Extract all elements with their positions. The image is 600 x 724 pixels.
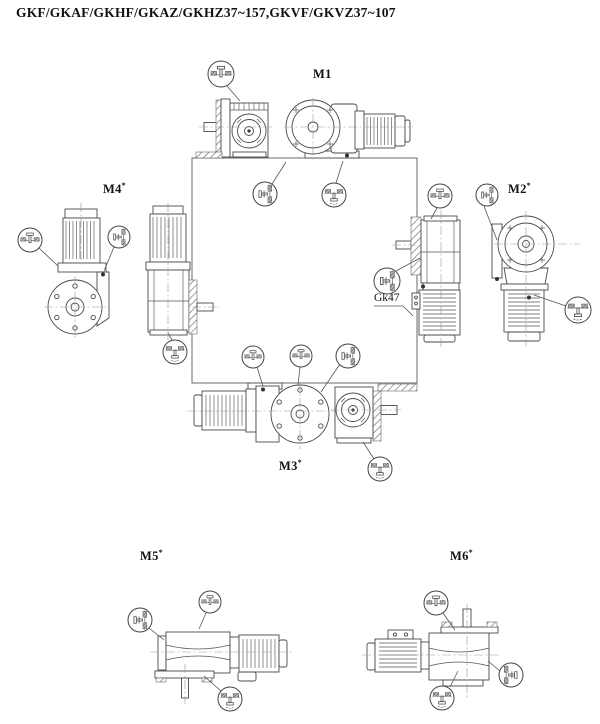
vent-plug-icon [290, 345, 312, 367]
drain-plug-icon [368, 457, 392, 481]
label-m4: M4* [103, 181, 126, 197]
m3-left-gearmotor-drawing [188, 382, 336, 449]
m6-gearmotor-drawing [362, 604, 500, 700]
side-oil-plug-icon [253, 182, 277, 206]
label-m5: M5* [140, 548, 163, 564]
drain-plug-icon [322, 183, 346, 207]
vent-plug-icon [208, 61, 234, 87]
diagram-canvas [0, 0, 600, 724]
vent-plug-icon [428, 184, 452, 208]
gk47-leader-line [374, 306, 413, 316]
m4-right-gearmotor-drawing [146, 203, 220, 340]
side-oil-plug-icon [476, 184, 498, 206]
mounting-positions-page: { "title": "GKF/GKAF/GKHF/GKAZ/GKHZ37~15… [0, 0, 600, 724]
drain-plug-icon [163, 340, 187, 364]
drain-plug-icon [430, 686, 454, 710]
drain-plug-icon [565, 297, 591, 323]
m1-right-gearmotor-drawing [284, 98, 413, 160]
vent-plug-icon [18, 228, 42, 252]
m2-right-gearmotor-drawing [492, 211, 580, 346]
m1-left-gear-unit-drawing [196, 99, 274, 158]
side-oil-plug-icon [499, 663, 523, 687]
gk47-note: Gk47 [374, 292, 400, 304]
m2-wall-gearmotor-drawing [392, 210, 460, 348]
label-m6: M6* [450, 548, 473, 564]
side-oil-plug-icon [108, 226, 130, 248]
label-m3: M3* [279, 458, 302, 474]
side-oil-plug-icon [336, 344, 360, 368]
vent-plug-icon [199, 591, 221, 613]
label-m1: M1 [313, 66, 332, 82]
label-m2: M2* [508, 181, 531, 197]
vent-plug-icon [424, 591, 448, 615]
drain-plug-icon [218, 687, 242, 711]
side-oil-plug-icon [374, 268, 400, 294]
m3-right-gear-unit-drawing [330, 384, 417, 443]
vent-plug-icon [242, 346, 264, 368]
m4-left-gearmotor-drawing [44, 203, 109, 340]
side-oil-plug-icon [128, 608, 152, 632]
